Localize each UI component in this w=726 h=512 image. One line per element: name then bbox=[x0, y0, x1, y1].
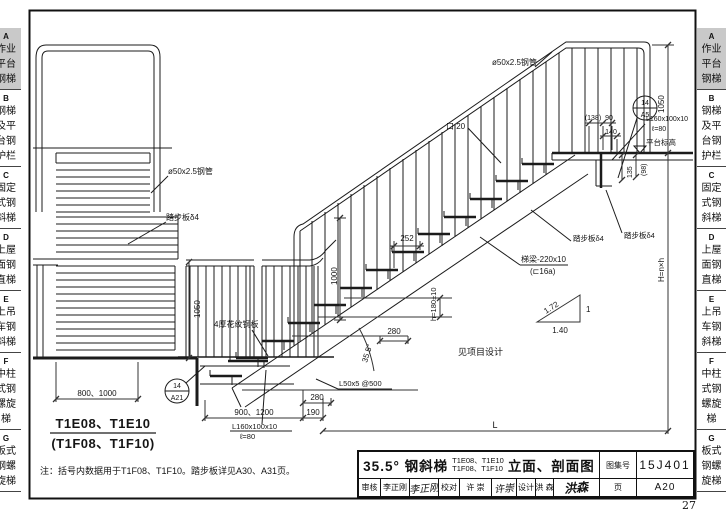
sidebar-tab-e[interactable]: E 上吊 车钢 斜梯 bbox=[697, 291, 726, 353]
sidebar-tab-a[interactable]: A 作业 平台 钢梯 bbox=[0, 28, 21, 90]
dim-98: (98) bbox=[641, 164, 648, 176]
stair-drawing: ø50x2.5钢管 口 20 ø50x2.5钢管 踏步板δ4 踏步板δ4 踏步板… bbox=[0, 0, 726, 512]
dim-800-1000: 800、1000 bbox=[77, 389, 117, 398]
sidebar-tab-g[interactable]: G 板式 钢螺 旋梯 bbox=[697, 430, 726, 492]
dim-140: 140 bbox=[605, 129, 617, 136]
sidebar-tab-d[interactable]: D 上屋 面钢 直梯 bbox=[697, 229, 726, 291]
sidebar-tab-g[interactable]: G 板式 钢螺 旋梯 bbox=[0, 430, 21, 492]
dim-1000: 1000 bbox=[330, 267, 339, 285]
dim-riser: h=180±10 bbox=[429, 287, 438, 321]
sheet-title: 35.5° 钢斜梯 T1E08、T1E10 T1F08、T1F10 立面、剖面图 bbox=[359, 452, 600, 478]
callout-bottom-num: 14 bbox=[173, 383, 181, 390]
dim-280-mid: 280 bbox=[387, 327, 401, 336]
sidebar-tab-c[interactable]: C 固定 式钢 斜梯 bbox=[0, 167, 21, 229]
dim-190: 190 bbox=[306, 408, 320, 417]
callout-top-num: 14 bbox=[641, 100, 649, 107]
check-label: 校对 bbox=[439, 479, 460, 496]
page-label: 页 bbox=[600, 479, 637, 496]
label-tread-side: 踏步板δ4 bbox=[573, 233, 604, 243]
type-designation-line2: (T1F08、T1F10) bbox=[51, 436, 154, 451]
atlas-number: 15J401 bbox=[637, 452, 693, 478]
design-signature: 洪森 bbox=[554, 479, 600, 496]
dim-1050-right: 1050 bbox=[657, 95, 666, 113]
label-stringer-channel: (⊏16a) bbox=[530, 267, 556, 276]
label-square-baluster: 口 20 bbox=[446, 122, 466, 131]
sidebar-tab-f[interactable]: F 中柱 式钢 螺旋 梯 bbox=[697, 353, 726, 430]
dim-90: 90 bbox=[605, 115, 613, 122]
slope-horizontal: 1.40 bbox=[552, 326, 568, 335]
label-platform-level: 平台标高 bbox=[646, 137, 676, 147]
sidebar-tab-a[interactable]: A 作业 平台 钢梯 bbox=[697, 28, 726, 90]
design-name: 洪 森 bbox=[536, 479, 554, 496]
label-angle-l50: L50x5 @500 bbox=[339, 379, 382, 388]
sheet-title-models: T1E08、T1E10 T1F08、T1F10 bbox=[452, 457, 504, 474]
check-signature: 许崇 bbox=[492, 479, 517, 496]
label-cleat-bottom-len: ℓ=80 bbox=[239, 432, 255, 441]
type-designation-line1: T1E08、T1E10 bbox=[55, 416, 150, 431]
sidebar-tab-f[interactable]: F 中柱 式钢 螺旋 梯 bbox=[0, 353, 21, 430]
page-code: A20 bbox=[637, 479, 693, 496]
check-name: 许 崇 bbox=[460, 479, 492, 496]
label-pipe-left: ø50x2.5钢管 bbox=[168, 166, 213, 176]
title-block: 35.5° 钢斜梯 T1E08、T1E10 T1F08、T1F10 立面、剖面图… bbox=[357, 450, 695, 498]
label-cleat-bottom: L160x100x10 bbox=[232, 422, 277, 431]
front-elevation-lines bbox=[33, 45, 336, 406]
sidebar-tab-b[interactable]: B 钢梯 及平 台钢 护栏 bbox=[697, 90, 726, 167]
review-label: 审核 bbox=[359, 479, 381, 496]
drawing-note: 注：括号内数据用于T1F08、T1F10。踏步板详见A30、A31页。 bbox=[40, 465, 295, 476]
dim-135: 135 bbox=[627, 166, 634, 178]
label-tread-left: 踏步板δ4 bbox=[166, 212, 199, 222]
label-stringer: 梯梁-220x10 bbox=[521, 254, 566, 264]
design-label: 设计 bbox=[517, 479, 536, 496]
sidebar-tab-b[interactable]: B 钢梯 及平 台钢 护栏 bbox=[0, 90, 21, 167]
slope-vertical: 1 bbox=[586, 305, 591, 314]
label-see-project: 见项目设计 bbox=[458, 346, 503, 357]
label-tread-top: 踏步板δ4 bbox=[624, 230, 655, 240]
sidebar-tab-e[interactable]: E 上吊 车钢 斜梯 bbox=[0, 291, 21, 353]
dim-1050-left: 1050 bbox=[193, 300, 202, 318]
sidebar-tab-d[interactable]: D 上屋 面钢 直梯 bbox=[0, 229, 21, 291]
section-index-left: A 作业 平台 钢梯 B 钢梯 及平 台钢 护栏 C 固定 式钢 斜梯 D 上屋… bbox=[0, 28, 29, 492]
leader-lines bbox=[50, 52, 657, 433]
sidebar-tab-c[interactable]: C 固定 式钢 斜梯 bbox=[697, 167, 726, 229]
label-cleat-top: L160x100x10 bbox=[646, 116, 688, 123]
section-index-right: A 作业 平台 钢梯 B 钢梯 及平 台钢 护栏 C 固定 式钢 斜梯 D 上屋… bbox=[697, 28, 726, 492]
callout-top-page: A5 bbox=[641, 112, 650, 119]
sheet-title-right: 立面、剖面图 bbox=[508, 455, 595, 475]
sheet-title-left: 35.5° 钢斜梯 bbox=[363, 455, 448, 475]
dim-L: L bbox=[492, 420, 497, 430]
atlas-number-label: 图集号 bbox=[600, 452, 637, 478]
drawing-sheet: ø50x2.5钢管 口 20 ø50x2.5钢管 踏步板δ4 踏步板δ4 踏步板… bbox=[0, 0, 726, 512]
dim-H-total: H=n×h bbox=[657, 258, 666, 282]
review-name: 李正刚 bbox=[381, 479, 410, 496]
dim-900-1200: 900、1200 bbox=[234, 408, 274, 417]
label-handrail-pipe: ø50x2.5钢管 bbox=[492, 57, 537, 67]
dim-280-bottom: 280 bbox=[310, 393, 324, 402]
dim-252: 252 bbox=[400, 234, 414, 243]
label-checker-plate: 4厚花纹钢板 bbox=[214, 319, 258, 329]
label-cleat-top-len: ℓ=80 bbox=[651, 126, 666, 133]
tab-letter: A bbox=[0, 31, 21, 42]
callout-bottom-page: A21 bbox=[171, 395, 184, 402]
dim-138: (138) bbox=[585, 115, 601, 122]
page-number: 27 bbox=[682, 499, 696, 512]
review-signature: 李正刚 bbox=[410, 479, 439, 496]
